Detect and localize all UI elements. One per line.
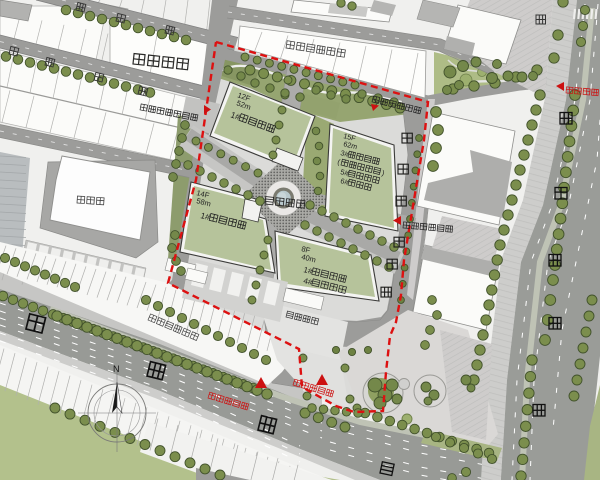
- svg-text:N: N: [113, 364, 120, 374]
